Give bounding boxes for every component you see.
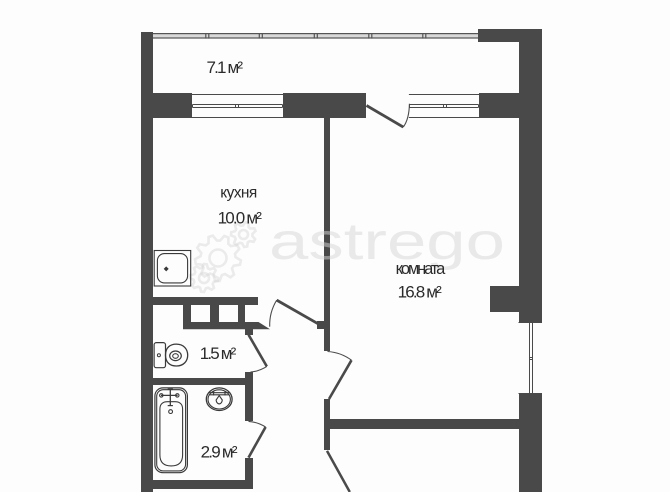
svg-text:кухня: кухня [220, 185, 257, 202]
svg-text:10.0 м²: 10.0 м² [218, 209, 263, 228]
svg-text:2.9 м²: 2.9 м² [201, 442, 238, 461]
svg-text:16.8 м²: 16.8 м² [398, 283, 443, 302]
svg-text:1.5 м²: 1.5 м² [200, 344, 237, 363]
svg-text:astrego: astrego [269, 213, 505, 271]
svg-text:7.1 м²: 7.1 м² [207, 58, 244, 77]
svg-text:комната: комната [396, 260, 447, 278]
